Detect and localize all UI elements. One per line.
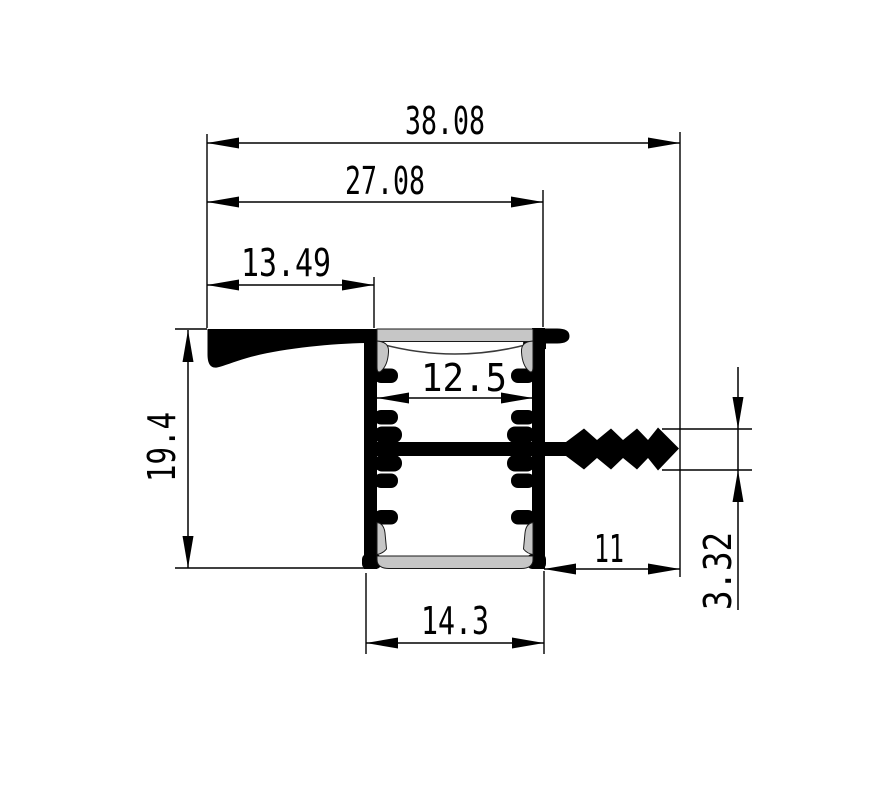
arrowhead-bottom [183, 536, 194, 568]
stub-upper-right-2 [511, 410, 535, 425]
arrowhead-right [512, 638, 544, 649]
dim-fin-length: 11 [544, 527, 680, 575]
dim-label-fin-length: 11 [594, 527, 624, 571]
dim-fin-height: 3.32 [662, 367, 752, 610]
stub-upper-left-2 [374, 410, 398, 425]
divider-fillet-lower-left [374, 455, 402, 472]
diffuser-leg-left [377, 341, 389, 372]
arrowhead-left [207, 280, 239, 291]
dim-flange-width: 13.49 [207, 241, 374, 328]
anchor-fin-teeth [566, 428, 679, 471]
divider-fillet-lower-right [507, 455, 535, 472]
stub-lower-left-1 [374, 474, 398, 489]
arrowhead-right [342, 280, 374, 291]
dim-chamber-inner-width: 12.5 [377, 356, 533, 404]
dim-overall-height: 19.4 [140, 329, 366, 568]
stub-lower-right-2 [511, 510, 535, 525]
dim-label-fin-height: 3.32 [696, 532, 740, 610]
arrowhead-left [544, 564, 576, 575]
arrowhead-right [648, 138, 680, 149]
divider-fillet-upper-right [507, 427, 535, 444]
dimensions: 38.08 27.08 13.49 12.5 [140, 99, 752, 654]
diffuser-lens-arc [381, 344, 529, 354]
arrowhead-left [207, 138, 239, 149]
arrowhead-left [207, 197, 239, 208]
dim-label-flange-width: 13.49 [241, 241, 331, 285]
bottom-cover-slab [377, 556, 533, 569]
diffuser-leg-right [521, 341, 533, 372]
arrowhead-left [366, 638, 398, 649]
arrowhead-top [183, 330, 194, 362]
dim-label-overall-width: 38.08 [405, 99, 485, 143]
arrowhead-right [511, 197, 543, 208]
dim-body-width: 14.3 [366, 571, 544, 654]
diffuser-top-strip [377, 329, 533, 342]
dim-label-overall-height: 19.4 [140, 412, 184, 482]
stub-lower-right-1 [511, 474, 535, 489]
divider-fillet-upper-left [374, 427, 402, 444]
mid-divider [364, 442, 545, 456]
bottom-cover-arm-left [377, 523, 387, 555]
arrowhead-up [733, 470, 744, 502]
technical-drawing-page: 38.08 27.08 13.49 12.5 [0, 0, 878, 786]
dim-label-chamber-inner-width: 12.5 [421, 356, 507, 400]
mounting-flange [208, 329, 378, 368]
arrowhead-left [377, 393, 409, 404]
bottom-cover-arm-right [524, 523, 534, 555]
arrowhead-down [733, 397, 744, 429]
dim-label-body-width: 14.3 [421, 599, 489, 643]
arrowhead-right [648, 564, 680, 575]
dim-label-flange-to-body-right: 27.08 [345, 159, 425, 203]
dim-overall-width: 38.08 [207, 99, 680, 149]
technical-drawing-canvas: 38.08 27.08 13.49 12.5 [0, 0, 878, 786]
